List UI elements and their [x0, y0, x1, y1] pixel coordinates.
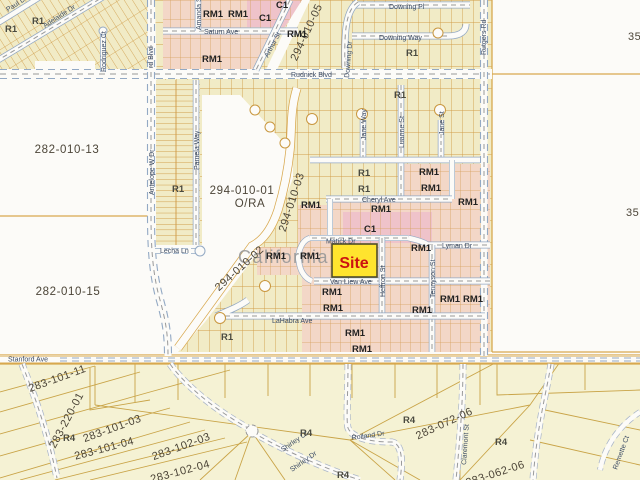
- svg-text:RM1: RM1: [440, 294, 461, 305]
- svg-text:Amanda St: Amanda St: [196, 0, 203, 30]
- svg-text:Van Liew Ave: Van Liew Ave: [330, 279, 372, 286]
- svg-text:R1: R1: [221, 332, 234, 343]
- svg-text:RM1: RM1: [371, 204, 392, 215]
- svg-text:C1: C1: [276, 0, 289, 11]
- svg-text:RM1: RM1: [266, 251, 287, 262]
- svg-text:RM1: RM1: [411, 243, 432, 254]
- svg-text:Stanford Ave: Stanford Ave: [8, 357, 48, 364]
- svg-text:RM1: RM1: [228, 9, 249, 20]
- svg-text:Jane St: Jane St: [439, 111, 446, 135]
- svg-text:RM1: RM1: [412, 305, 433, 316]
- svg-text:282-010-15: 282-010-15: [36, 286, 101, 298]
- svg-text:Luanne St: Luanne St: [399, 116, 406, 148]
- svg-text:Antelope W Dr: Antelope W Dr: [149, 149, 156, 195]
- svg-text:Saturn Ave: Saturn Ave: [204, 29, 238, 36]
- svg-text:RM1: RM1: [203, 9, 224, 20]
- svg-text:RM1: RM1: [421, 183, 442, 194]
- svg-text:Pamela Way: Pamela Way: [194, 130, 201, 170]
- svg-text:Lyman Dr: Lyman Dr: [442, 243, 473, 250]
- svg-text:282-010-13: 282-010-13: [35, 144, 100, 156]
- svg-text:R4: R4: [403, 415, 416, 426]
- svg-text:Site: Site: [339, 255, 368, 272]
- svg-text:RM1: RM1: [300, 251, 321, 262]
- svg-text:R4: R4: [63, 433, 76, 444]
- svg-text:R1: R1: [5, 24, 18, 35]
- svg-text:Rodriguez Ct: Rodriguez Ct: [101, 31, 108, 72]
- svg-text:RM1: RM1: [458, 197, 479, 208]
- svg-text:Cheryl Ave: Cheryl Ave: [362, 197, 396, 204]
- svg-text:RM1: RM1: [202, 54, 223, 65]
- svg-text:RM1: RM1: [463, 294, 484, 305]
- svg-text:Rutgers Rd: Rutgers Rd: [481, 19, 488, 55]
- svg-text:RM1: RM1: [345, 328, 366, 339]
- svg-text:35: 35: [626, 207, 639, 219]
- svg-text:LaHabra Ave: LaHabra Ave: [272, 318, 312, 325]
- svg-text:O/RA: O/RA: [235, 198, 266, 210]
- svg-text:R1: R1: [358, 184, 371, 195]
- svg-text:R4: R4: [495, 437, 508, 448]
- svg-text:RM1: RM1: [323, 303, 344, 314]
- svg-text:RM1: RM1: [322, 287, 343, 298]
- svg-text:Heffron St: Heffron St: [380, 266, 387, 297]
- svg-text:Downing Way: Downing Way: [379, 35, 422, 42]
- svg-text:350: 350: [628, 31, 640, 43]
- svg-text:Matick Dr: Matick Dr: [326, 239, 356, 246]
- svg-text:RM1: RM1: [287, 29, 308, 40]
- svg-text:R1: R1: [406, 48, 419, 59]
- svg-text:RM1: RM1: [352, 344, 373, 355]
- svg-text:294-010-01: 294-010-01: [210, 185, 275, 197]
- svg-text:Lecha Ln: Lecha Ln: [160, 248, 189, 255]
- svg-text:R1: R1: [358, 168, 371, 179]
- svg-text:C1: C1: [364, 224, 377, 235]
- svg-text:RM1: RM1: [419, 167, 440, 178]
- svg-text:Downing Pl: Downing Pl: [389, 4, 425, 11]
- svg-text:Tennyson St: Tennyson St: [430, 259, 437, 298]
- svg-text:R4: R4: [337, 470, 350, 480]
- svg-text:Jane Way: Jane Way: [361, 109, 368, 140]
- svg-text:R1: R1: [172, 184, 185, 195]
- svg-text:R1: R1: [394, 90, 407, 101]
- svg-text:rd Blvd: rd Blvd: [148, 46, 155, 68]
- svg-text:RM1: RM1: [301, 200, 322, 211]
- svg-text:C1: C1: [259, 13, 272, 24]
- svg-text:Rudnick Blvd: Rudnick Blvd: [291, 72, 332, 79]
